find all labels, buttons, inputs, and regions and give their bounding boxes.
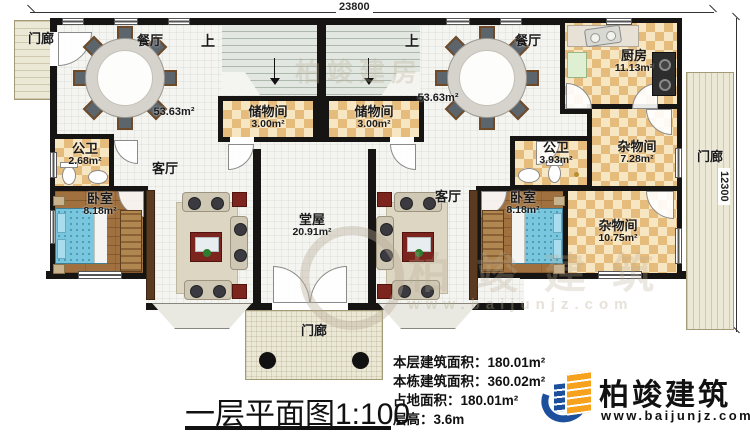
sofa-cushion (213, 285, 226, 298)
window (675, 228, 682, 264)
stat-row: 层高：3.6m (393, 410, 545, 429)
stats-block: 本层建筑面积：180.01m² 本栋建筑面积：360.02m² 占地面积：180… (393, 353, 545, 429)
plant-icon (415, 249, 423, 257)
side-table (232, 284, 247, 299)
window (62, 18, 84, 25)
bay-window-right (378, 303, 478, 329)
porch-column (259, 352, 276, 369)
logo-building-blue (554, 383, 565, 412)
toilet-icon (548, 164, 561, 183)
tv-cabinet (146, 190, 155, 300)
burner (659, 59, 671, 71)
window (675, 148, 682, 178)
porch-column (352, 352, 369, 369)
label-living-right: 客厅 (435, 186, 461, 205)
sofa (184, 280, 232, 300)
sofa-set-left (146, 188, 250, 306)
label-bedroom-left: 卧室 8.18m² (83, 193, 116, 217)
window (168, 18, 190, 25)
sofa-set-right (374, 188, 478, 306)
label-bath-left: 公卫 2.68m² (68, 143, 101, 167)
wardrobe (482, 210, 504, 272)
stove-icon (652, 52, 676, 96)
tv-cabinet (469, 190, 478, 300)
side-table (377, 284, 392, 299)
label-bath-right: 公卫 3.93m² (539, 142, 572, 166)
label-dining-left: 餐厅 (137, 30, 163, 49)
stat-row: 本栋建筑面积：360.02m² (393, 372, 545, 391)
stairs-down-arrow-icon (274, 58, 275, 80)
stairs-down-arrow-icon (368, 58, 369, 80)
coffee-table (402, 232, 434, 262)
label-porch-top-left: 门廊 (28, 28, 54, 47)
label-storage-right: 储物间 3.00m² (354, 106, 393, 130)
pillow (553, 213, 562, 233)
window (114, 18, 138, 25)
sofa-cushion (190, 285, 203, 298)
nightstand (53, 264, 65, 274)
label-hall: 堂屋 20.91m² (292, 214, 331, 238)
label-dining-right-area: 53.63m² (418, 92, 459, 104)
sofa (392, 280, 440, 300)
logo: 柏竣建筑 www.baijunjz.com (541, 366, 741, 432)
label-stairs-right: 上 (405, 31, 419, 51)
title-underline (185, 426, 391, 430)
logo-building-orange (567, 370, 591, 415)
toilet-icon (62, 166, 76, 185)
nightstand (53, 196, 65, 206)
sofa-cushion (421, 285, 434, 298)
floor-plan-canvas: 23800 12300 (0, 0, 750, 441)
label-stairs-left: 上 (201, 31, 215, 51)
stat-row: 本层建筑面积：180.01m² (393, 353, 545, 372)
sink-icon (88, 170, 108, 184)
pillow (553, 239, 562, 259)
wall-hall-left (253, 149, 261, 310)
floor-drain-icon (574, 172, 579, 177)
sofa-cushion (188, 197, 201, 210)
label-porch-front: 门廊 (301, 320, 327, 339)
label-utility-upper: 杂物间 7.28m² (617, 141, 656, 165)
window (446, 18, 470, 25)
label-dining-left-area: 53.63m² (154, 106, 195, 118)
window (598, 271, 642, 279)
round-table-top (459, 50, 515, 106)
stat-row: 占地面积：180.01m² (393, 391, 545, 410)
wardrobe (120, 210, 142, 272)
dimension-width-label: 23800 (336, 1, 373, 13)
sofa-cushion (211, 197, 224, 210)
coffee-table (190, 232, 222, 262)
label-kitchen: 厨房 11.13m² (615, 50, 654, 74)
pillow (57, 239, 66, 259)
outside-patch-left (44, 278, 146, 311)
sofa (182, 192, 230, 212)
sink-basin (590, 32, 601, 43)
dimension-height-label: 12300 (718, 168, 730, 205)
round-table-top (97, 50, 153, 106)
bay-window-left (152, 303, 252, 329)
stairs-arrowhead-icon (270, 78, 280, 85)
sofa (376, 216, 394, 270)
label-porch-right: 门廊 (697, 146, 723, 165)
sofa-cushion (234, 223, 247, 236)
sink-icon (518, 168, 540, 183)
sofa-cushion (400, 197, 413, 210)
side-table (377, 192, 392, 207)
label-utility-lower: 杂物间 10.75m² (598, 220, 637, 244)
fridge-icon (567, 52, 587, 78)
label-dining-right: 餐厅 (515, 30, 541, 49)
pillow (57, 213, 66, 233)
burner (659, 79, 671, 91)
nightstand (553, 196, 565, 206)
nightstand (553, 264, 565, 274)
window (50, 152, 57, 178)
window (500, 18, 522, 25)
plant-icon (203, 249, 211, 257)
logo-website: www.baijunjz.com (601, 408, 750, 423)
label-storage-left: 储物间 3.00m² (248, 106, 287, 130)
logo-mark-icon (541, 368, 601, 430)
sink-basin (605, 30, 616, 41)
label-bedroom-right: 卧室 8.18m² (506, 192, 539, 216)
bed-sheet (512, 209, 525, 263)
window (78, 271, 122, 279)
sofa-cushion (398, 285, 411, 298)
dimension-line-right (736, 18, 737, 332)
label-living-left: 客厅 (152, 158, 178, 177)
sofa-cushion (234, 249, 247, 262)
bed-sheet (94, 209, 107, 263)
sofa (230, 216, 248, 270)
stairs-arrowhead-icon (364, 78, 374, 85)
window (606, 18, 632, 25)
sofa-cushion (380, 223, 393, 236)
outside-patch-right (524, 278, 686, 311)
side-table (232, 192, 247, 207)
bed-right (511, 208, 563, 264)
sofa-cushion (380, 249, 393, 262)
